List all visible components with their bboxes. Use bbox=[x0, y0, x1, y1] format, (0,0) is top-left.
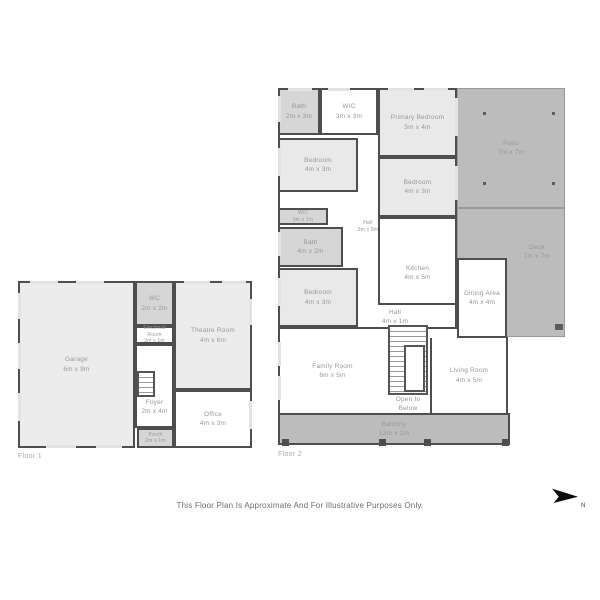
window bbox=[388, 88, 414, 91]
hall-upper-label: Hall3m x 8m bbox=[350, 220, 386, 233]
window bbox=[249, 401, 252, 429]
patio-post bbox=[552, 182, 555, 185]
patio-post bbox=[552, 112, 555, 115]
floor2-plan: Patio7m x 7m Deck7m x 7m Bath2m x 3m WIC… bbox=[278, 88, 567, 450]
room-label: Electrical Room2m x 1m bbox=[137, 325, 172, 345]
window bbox=[278, 376, 281, 400]
window bbox=[455, 98, 458, 136]
patio-post bbox=[483, 182, 486, 185]
room-label: Theatre Room4m x 6m bbox=[191, 326, 235, 344]
window bbox=[278, 342, 281, 366]
stair-shaft bbox=[404, 345, 425, 392]
window bbox=[278, 96, 281, 122]
room-label: Family Room6m x 5m bbox=[312, 362, 352, 380]
window bbox=[424, 88, 448, 91]
window bbox=[76, 281, 104, 284]
balcony-post bbox=[424, 439, 431, 446]
window bbox=[278, 278, 281, 306]
north-letter: N bbox=[581, 503, 585, 509]
floor2-label: Floor 2 bbox=[278, 451, 302, 458]
window bbox=[18, 393, 21, 421]
window bbox=[18, 343, 21, 369]
room-theatre: Theatre Room4m x 6m bbox=[174, 281, 252, 390]
room-label: Garage6m x 9m bbox=[63, 355, 89, 373]
room-bedroom-lower: Bedroom4m x 3m bbox=[278, 268, 358, 327]
open-to-below-label: Open toBelow bbox=[381, 395, 435, 413]
room-family: Family Room6m x 5m bbox=[280, 329, 385, 413]
room-label: Dining Area4m x 4m bbox=[464, 289, 500, 307]
room-wic-top: WIC3m x 3m bbox=[320, 88, 378, 135]
room-label: Primary Bedroom5m x 4m bbox=[391, 113, 445, 131]
room-office: Office4m x 3m bbox=[174, 390, 252, 448]
room-label: Bedroom4m x 3m bbox=[304, 156, 332, 174]
window bbox=[288, 88, 312, 91]
floorplan-page: Garage6m x 9m WC2m x 2m Electrical Room2… bbox=[0, 0, 600, 600]
window bbox=[278, 148, 281, 176]
room-label: Kitchen4m x 5m bbox=[404, 264, 430, 282]
room-label: Foyer2m x 4m bbox=[141, 398, 167, 416]
staircase-floor1 bbox=[137, 371, 155, 397]
room-dining: Dining Area4m x 4m bbox=[457, 258, 507, 338]
room-label: Bath2m x 3m bbox=[286, 102, 312, 120]
room-label: Patio7m x 7m bbox=[498, 139, 524, 157]
room-bedroom-right: Bedroom4m x 3m bbox=[378, 157, 457, 217]
room-label: WIC3m x 1m bbox=[293, 210, 314, 223]
patio-post bbox=[483, 112, 486, 115]
floor1-plan: Garage6m x 9m WC2m x 2m Electrical Room2… bbox=[18, 281, 252, 448]
room-label: Balcony13m x 2m bbox=[379, 420, 409, 438]
window bbox=[328, 88, 350, 91]
window bbox=[222, 281, 246, 284]
room-label: Bedroom4m x 3m bbox=[404, 178, 432, 196]
room-bath-mid: Bath4m x 2m bbox=[278, 227, 343, 267]
room-label: WC2m x 2m bbox=[141, 294, 167, 312]
window bbox=[96, 445, 122, 448]
window bbox=[30, 281, 58, 284]
balcony-post bbox=[379, 439, 386, 446]
room-primary-bedroom: Primary Bedroom5m x 4m bbox=[378, 88, 457, 157]
window bbox=[46, 445, 76, 448]
room-bedroom-upper: Bedroom4m x 3m bbox=[278, 138, 358, 192]
deck-fixture bbox=[555, 324, 563, 330]
window bbox=[249, 299, 252, 325]
window bbox=[184, 281, 210, 284]
room-kitchen: Kitchen4m x 5m bbox=[378, 217, 457, 305]
room-balcony: Balcony13m x 2m bbox=[278, 413, 510, 445]
hall-lower-label: Hall4m x 1m bbox=[375, 308, 415, 326]
room-label: Porch2m x 1m bbox=[145, 432, 166, 445]
balcony-post bbox=[502, 439, 509, 446]
room-patio: Patio7m x 7m bbox=[457, 88, 565, 208]
room-bath-top: Bath2m x 3m bbox=[278, 88, 320, 135]
room-label: Bath4m x 2m bbox=[297, 238, 323, 256]
room-garage: Garage6m x 9m bbox=[18, 281, 135, 448]
room-electrical: Electrical Room2m x 1m bbox=[135, 326, 174, 344]
room-label: Office4m x 3m bbox=[200, 410, 226, 428]
room-label: Deck7m x 7m bbox=[524, 243, 550, 261]
window bbox=[18, 293, 21, 319]
balcony-post bbox=[282, 439, 289, 446]
room-label: Bedroom4m x 3m bbox=[304, 288, 332, 306]
room-label: Living Room4m x 5m bbox=[450, 366, 488, 384]
room-living: Living Room4m x 5m bbox=[430, 338, 506, 413]
staircase-floor2 bbox=[388, 325, 428, 395]
window bbox=[278, 232, 281, 256]
room-porch: Porch2m x 1m bbox=[137, 428, 174, 448]
room-wc: WC2m x 2m bbox=[135, 281, 174, 326]
window bbox=[455, 166, 458, 200]
room-wic-small: WIC3m x 1m bbox=[278, 208, 328, 225]
floor1-label: Floor 1 bbox=[18, 453, 42, 460]
room-label: WIC3m x 3m bbox=[336, 102, 362, 120]
disclaimer-text: This Floor Plan Is Approximate And For I… bbox=[0, 501, 600, 510]
